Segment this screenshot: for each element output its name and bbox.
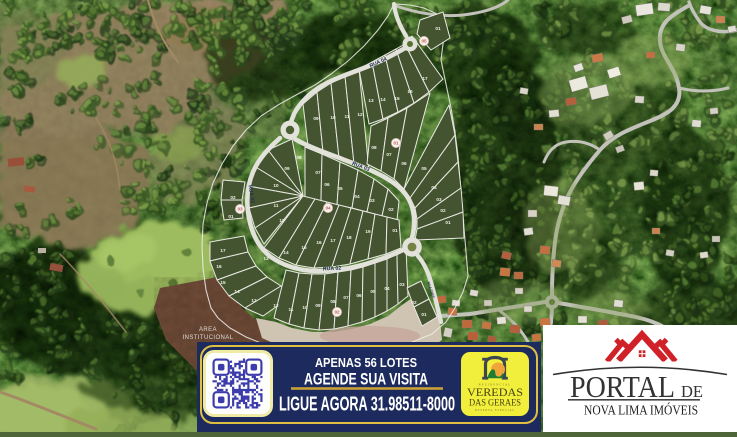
svg-text:16: 16 xyxy=(216,264,222,269)
svg-text:RUA 02: RUA 02 xyxy=(323,266,342,273)
svg-text:08: 08 xyxy=(330,299,336,304)
svg-text:18: 18 xyxy=(346,235,352,240)
svg-text:01: 01 xyxy=(421,312,427,317)
svg-text:04: 04 xyxy=(354,194,360,199)
svg-text:APENAS 56 LOTES: APENAS 56 LOTES xyxy=(315,356,417,370)
svg-text:10: 10 xyxy=(302,305,308,310)
svg-text:03: 03 xyxy=(369,198,375,203)
svg-text:05: 05 xyxy=(421,166,427,171)
svg-text:02: 02 xyxy=(230,195,236,200)
svg-text:12: 12 xyxy=(273,303,279,308)
svg-text:14: 14 xyxy=(283,250,289,255)
svg-text:03: 03 xyxy=(436,197,442,202)
svg-text:09: 09 xyxy=(313,116,319,121)
svg-text:05: 05 xyxy=(337,186,343,191)
svg-text:15: 15 xyxy=(301,245,307,250)
svg-text:INSTITUCIONAL: INSTITUCIONAL xyxy=(183,335,234,341)
svg-text:AGENDE SUA VISITA: AGENDE SUA VISITA xyxy=(304,371,428,389)
svg-text:02: 02 xyxy=(411,300,417,305)
svg-text:DE: DE xyxy=(681,382,703,401)
svg-text:14: 14 xyxy=(380,97,386,102)
svg-text:08: 08 xyxy=(371,145,377,150)
svg-text:PORTAL: PORTAL xyxy=(570,369,675,404)
svg-text:07: 07 xyxy=(315,170,321,175)
svg-text:13: 13 xyxy=(251,298,257,303)
svg-text:02: 02 xyxy=(388,207,394,212)
svg-text:02: 02 xyxy=(334,310,340,315)
svg-text:05: 05 xyxy=(370,289,376,294)
svg-text:11: 11 xyxy=(289,307,294,312)
svg-text:03: 03 xyxy=(237,207,243,212)
svg-text:16: 16 xyxy=(407,89,413,94)
svg-text:01: 01 xyxy=(393,141,399,146)
svg-text:NOVA LIMA IMÓVEIS: NOVA LIMA IMÓVEIS xyxy=(584,403,698,418)
svg-text:01: 01 xyxy=(435,26,441,31)
svg-text:09: 09 xyxy=(315,303,321,308)
svg-text:10: 10 xyxy=(330,115,336,120)
svg-text:15: 15 xyxy=(220,280,226,285)
svg-text:07: 07 xyxy=(343,295,349,300)
svg-text:04: 04 xyxy=(384,286,390,291)
svg-text:03: 03 xyxy=(399,282,405,287)
svg-text:08: 08 xyxy=(296,155,302,160)
svg-text:06: 06 xyxy=(356,293,362,298)
svg-text:07: 07 xyxy=(386,152,392,157)
svg-text:ÁREA: ÁREA xyxy=(199,326,217,333)
svg-text:DAS GERAES: DAS GERAES xyxy=(469,399,521,409)
svg-text:15: 15 xyxy=(394,96,400,101)
svg-text:04: 04 xyxy=(431,185,437,190)
svg-text:VEREDAS: VEREDAS xyxy=(467,387,523,399)
svg-text:04: 04 xyxy=(325,206,331,211)
svg-text:16: 16 xyxy=(316,240,322,245)
svg-text:13: 13 xyxy=(368,98,374,103)
svg-text:06: 06 xyxy=(324,182,330,187)
svg-text:12: 12 xyxy=(357,112,363,117)
svg-text:02: 02 xyxy=(440,208,446,213)
svg-text:01: 01 xyxy=(392,228,398,233)
svg-text:01: 01 xyxy=(445,220,451,225)
svg-text:19: 19 xyxy=(365,229,371,234)
svg-text:11: 11 xyxy=(274,203,279,208)
svg-text:05: 05 xyxy=(421,39,427,44)
svg-text:17: 17 xyxy=(422,76,428,81)
svg-text:10: 10 xyxy=(273,183,279,188)
svg-text:RESIDENCIAL: RESIDENCIAL xyxy=(479,383,512,387)
svg-text:01: 01 xyxy=(228,214,234,219)
svg-text:LIGUE AGORA 31.98511-8000: LIGUE AGORA 31.98511-8000 xyxy=(279,394,455,416)
svg-text:11: 11 xyxy=(345,114,350,119)
svg-text:06: 06 xyxy=(401,161,407,166)
svg-text:17: 17 xyxy=(330,238,336,243)
svg-text:RESERVA ESPECIAL: RESERVA ESPECIAL xyxy=(475,409,515,412)
svg-text:09: 09 xyxy=(284,166,290,171)
svg-text:14: 14 xyxy=(234,289,240,294)
svg-text:17: 17 xyxy=(220,248,226,253)
